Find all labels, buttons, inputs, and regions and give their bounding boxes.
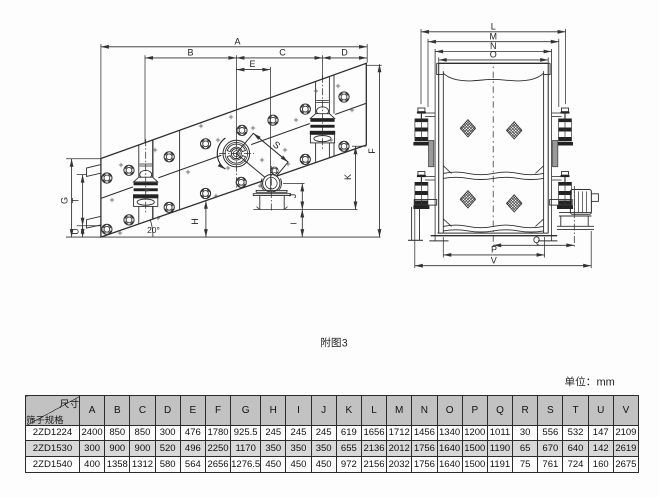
- svg-text:G: G: [59, 197, 69, 204]
- svg-text:C: C: [279, 48, 286, 58]
- svg-text:O: O: [490, 50, 497, 60]
- svg-text:B: B: [187, 48, 193, 58]
- svg-text:D: D: [341, 48, 348, 58]
- svg-text:S: S: [270, 139, 282, 152]
- svg-text:Q: Q: [533, 235, 540, 245]
- svg-text:20°: 20°: [147, 225, 160, 235]
- svg-text:A: A: [234, 36, 240, 46]
- svg-text:K: K: [343, 174, 353, 180]
- svg-text:V: V: [491, 255, 497, 265]
- svg-text:M: M: [489, 31, 497, 41]
- svg-text:J: J: [288, 194, 298, 199]
- svg-text:mm: mm: [597, 376, 615, 388]
- svg-text:E: E: [249, 59, 255, 69]
- svg-text:P: P: [491, 245, 497, 255]
- svg-text:U: U: [70, 229, 80, 235]
- svg-text:F: F: [367, 148, 377, 154]
- svg-text:I: I: [290, 222, 299, 224]
- svg-text:H: H: [190, 218, 200, 225]
- svg-text:3: 3: [342, 337, 348, 349]
- svg-text:T: T: [70, 197, 80, 203]
- svg-text:L: L: [491, 21, 496, 31]
